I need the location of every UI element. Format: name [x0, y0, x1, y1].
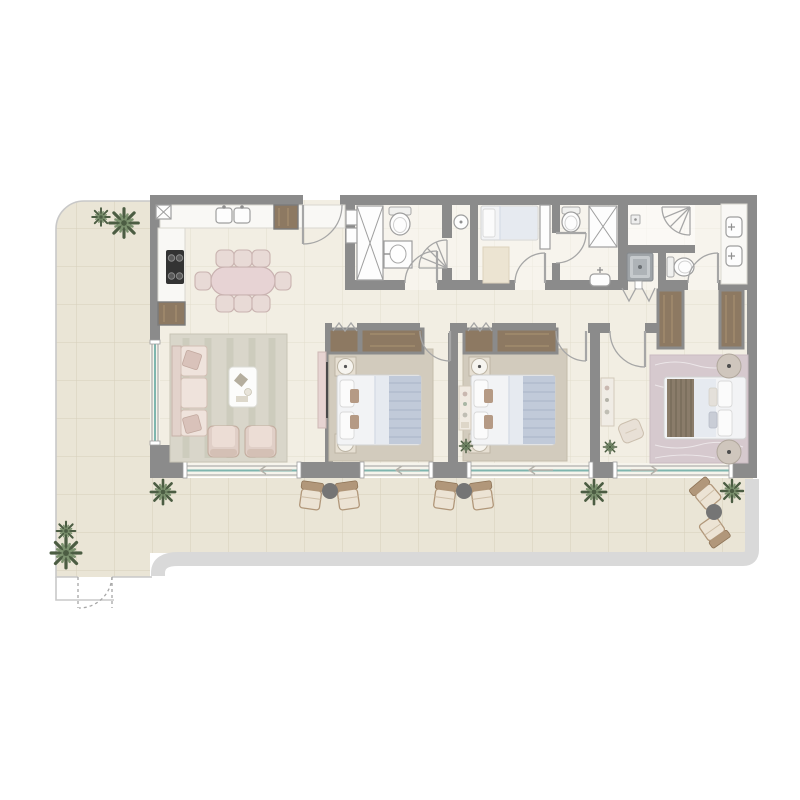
- sofa: [172, 346, 207, 436]
- wall-seg: [470, 205, 478, 280]
- shower: [589, 206, 617, 247]
- side-table: [706, 504, 722, 520]
- maid-rug: [483, 247, 509, 283]
- double-bed-icon: [664, 377, 746, 439]
- vanity-shelf: [601, 378, 614, 426]
- master-bathroom: [627, 204, 747, 284]
- side-table: [322, 483, 338, 499]
- terrace-landing: [56, 577, 114, 600]
- wall-seg: [588, 323, 610, 333]
- kitchen-counter-top: [160, 205, 345, 228]
- bedroom-1: [329, 329, 433, 461]
- foot-throw: [667, 379, 694, 437]
- wall-pier: [593, 462, 613, 478]
- terrace-gate: [78, 577, 112, 608]
- wall-seg: [590, 333, 600, 463]
- floor-plan-canvas: [0, 0, 800, 800]
- washing-machine: [627, 253, 653, 281]
- wardrobe: [720, 290, 743, 348]
- wall-pier: [433, 462, 467, 478]
- shower-drain: [631, 215, 640, 224]
- stove: [166, 250, 184, 284]
- round-nightstand: [717, 440, 741, 464]
- floor-plan-drawing: [0, 0, 800, 800]
- wall-seg: [442, 205, 452, 238]
- tall-cabinet: [274, 205, 298, 229]
- washbasin: [384, 241, 412, 268]
- shower: [357, 206, 383, 280]
- wall-top-left: [150, 195, 303, 205]
- bedroom-2: [459, 329, 567, 461]
- terrace-floor: [56, 201, 150, 577]
- wall-seg: [552, 205, 560, 233]
- wardrobe: [329, 329, 423, 353]
- wall-pier: [301, 462, 360, 478]
- coffee-table: [229, 367, 257, 407]
- base-cabinet: [158, 302, 185, 325]
- wall-seg: [442, 268, 452, 290]
- window-living-side: [150, 340, 160, 445]
- wall-pier: [733, 462, 757, 478]
- armchair: [245, 426, 276, 457]
- toilet: [389, 207, 411, 235]
- wardrobe: [464, 329, 557, 353]
- dresser: [459, 386, 471, 430]
- round-nightstand: [717, 354, 741, 378]
- wardrobe: [658, 290, 683, 348]
- wall-top-right: [340, 195, 757, 205]
- single-bed-icon: [481, 206, 538, 240]
- electrical-panel-icon: [156, 205, 171, 219]
- tv-console: [318, 352, 328, 428]
- wall-seg: [345, 280, 405, 290]
- wardrobe: [540, 205, 550, 249]
- wall-seg: [628, 245, 695, 253]
- dining-table: [211, 267, 275, 295]
- toilet: [562, 207, 580, 232]
- armchair: [208, 426, 239, 457]
- wall-seg: [658, 253, 666, 280]
- wall-seg: [552, 263, 560, 290]
- side-table: [456, 483, 472, 499]
- double-vanity: [721, 204, 747, 284]
